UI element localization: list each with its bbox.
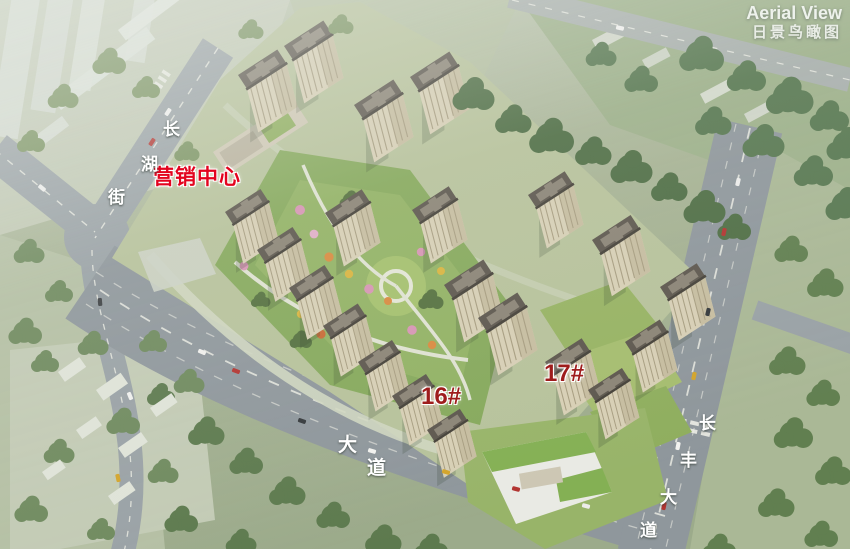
aerial-scene: [0, 0, 850, 549]
haze-overlay: [0, 0, 850, 549]
aerial-render-page: Aerial View 日景鸟瞰图 营销中心 长 湖 街 大 道 长 丰 大 道…: [0, 0, 850, 549]
